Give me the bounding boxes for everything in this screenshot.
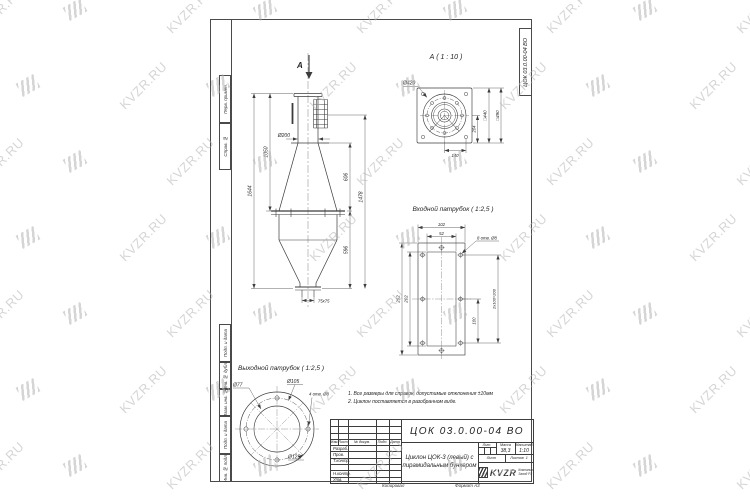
list-label: Лист <box>478 454 505 462</box>
dim-140: 140 <box>452 153 460 158</box>
dim-100: 100 <box>472 317 477 325</box>
inlet-detail-texts: Входной патрубок ( 1:2,5 ) 102 52 8 отв.… <box>396 205 498 325</box>
footer-format: Формат А3 <box>455 483 480 488</box>
dim-d125: Ø125 <box>287 455 300 461</box>
main-view-texts: А 1644 1050 Ø200 606 596 1478 75x75 <box>248 61 365 304</box>
col-header-doc: № докум. <box>348 439 376 445</box>
company-text: Компания Завод РЗ <box>518 469 533 477</box>
lit-label: Лит. <box>478 442 496 447</box>
dim-252: 252 <box>396 295 401 304</box>
massa-value: 38,3 <box>496 447 515 454</box>
drawing-name-line1: Циклон ЦОК-3 (левый) с <box>405 455 473 463</box>
main-view-cyclone <box>271 53 345 307</box>
inlet-detail-view <box>412 237 471 360</box>
col-header-podp: Подп. <box>376 439 389 445</box>
dim-202: 202 <box>404 295 409 304</box>
dim-52: 52 <box>439 231 444 236</box>
dim-sq490: □490 <box>495 110 500 121</box>
row-nkontr: Н.контр. <box>331 470 348 476</box>
outlet-detail-view <box>235 386 319 471</box>
dim-sq440: □440 <box>483 110 488 121</box>
row-utv: Утв. <box>331 477 348 483</box>
dim-d77: Ø77 <box>232 383 243 389</box>
listov-cell: Листов 1 <box>505 454 533 462</box>
row-prov: Пров. <box>331 451 348 457</box>
dim-upper-height: 1050 <box>264 146 270 157</box>
note-2: 2. Циклон поставляется в разобранном вид… <box>348 399 457 405</box>
outlet-detail-texts: Выходной патрубок ( 1:2,5 ) Ø77 Ø105 4 о… <box>232 364 330 461</box>
section-label: А <box>296 61 303 70</box>
main-view-dimensions <box>251 94 367 304</box>
detail-a-title: А ( 1 : 10 ) <box>429 54 463 61</box>
company-logo-word: KVZR <box>490 468 517 478</box>
inlet-title: Входной патрубок ( 1:2,5 ) <box>413 205 494 213</box>
masshtab-value: 1:10 <box>515 447 533 454</box>
dim-d105: Ø105 <box>286 379 299 385</box>
dim-right-height: 1478 <box>359 191 365 202</box>
listov-value: 1 <box>526 456 528 460</box>
note-1: 1. Все размеры для справок, допустимые о… <box>348 391 493 397</box>
dim-pipe-diameter: Ø200 <box>277 133 290 139</box>
section-arrow-icon <box>306 72 313 79</box>
drawing-name: Циклон ЦОК-3 (левый) с пирамидальным бун… <box>401 442 478 483</box>
footer-kopiroval: Копировал <box>382 483 404 488</box>
drawing-sheet-page: Перв. примен. Справ. № Подп. и дата Инв.… <box>0 0 750 500</box>
dim-total-height: 1644 <box>248 185 254 196</box>
dim-cone-height: 606 <box>344 173 350 182</box>
outlet-title: Выходной патрубок ( 1:2,5 ) <box>238 364 324 372</box>
dim-outlet-square: 75x75 <box>318 299 330 304</box>
company-cell: KVZR Компания Завод РЗ <box>478 462 533 483</box>
dim-102: 102 <box>438 222 446 227</box>
dim-2x100: 2x100=200 <box>492 288 497 310</box>
dim-bunker-height: 596 <box>344 246 350 255</box>
dim-204: 204 <box>471 125 476 134</box>
drawing-name-line2: пирамидальным бункером <box>403 463 477 471</box>
outlet-detail-dimensions <box>233 385 312 461</box>
detail-a-texts: А ( 1 : 10 ) Ø420 □440 □490 204 140 <box>402 54 500 158</box>
detail-a-view <box>417 88 472 143</box>
col-header-data: Дата <box>389 439 401 445</box>
inlet-detail-dimensions <box>399 225 501 356</box>
company-line2: Завод РЗ <box>518 472 532 476</box>
company-logo-icon <box>478 467 488 478</box>
inlet-holes-note: 8 отв. Ø8 <box>477 236 498 241</box>
drawing-designation: ЦОК 03.0.00-04 ВО <box>401 420 533 442</box>
title-block: Изм. Лист № докум. Подп. Дата Разраб. Пр… <box>330 419 534 484</box>
outlet-holes-note: 4 отв. Ø8 <box>309 392 330 397</box>
listov-label: Листов <box>510 456 523 460</box>
dim-d420: Ø420 <box>402 81 415 87</box>
